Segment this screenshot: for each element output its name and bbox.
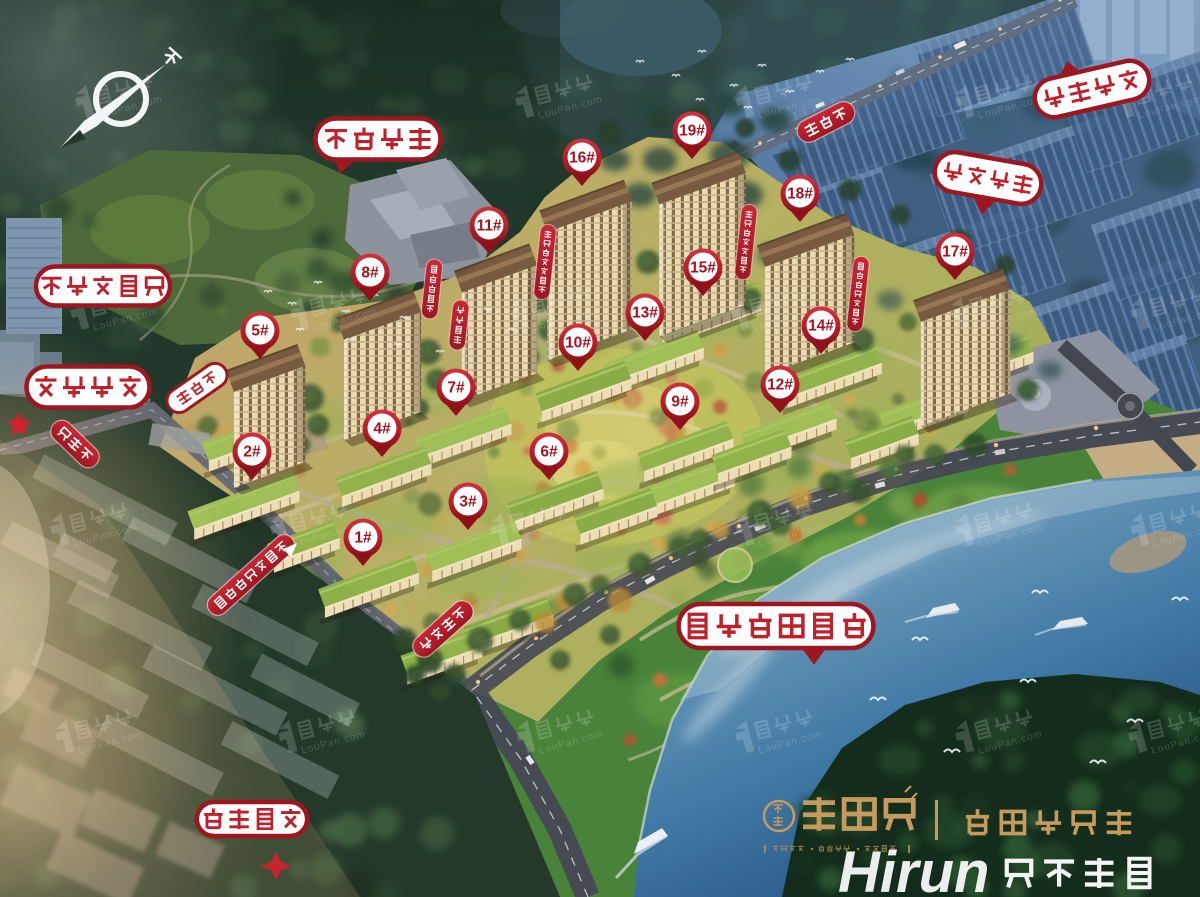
svg-text:11#: 11#	[476, 218, 501, 235]
svg-text:14#: 14#	[808, 318, 834, 335]
svg-text:9#: 9#	[671, 394, 689, 411]
svg-text:3#: 3#	[459, 494, 477, 511]
svg-text:5#: 5#	[251, 323, 269, 340]
svg-text:10#: 10#	[565, 335, 591, 352]
svg-text:1#: 1#	[354, 530, 372, 547]
svg-text:8#: 8#	[361, 265, 379, 282]
svg-text:15#: 15#	[690, 260, 716, 277]
svg-text:7#: 7#	[447, 380, 465, 397]
svg-text:2#: 2#	[243, 444, 261, 461]
svg-text:17#: 17#	[942, 244, 968, 261]
svg-text:Hirun: Hirun	[838, 840, 989, 897]
svg-text:4#: 4#	[373, 421, 391, 438]
svg-text:12#: 12#	[767, 377, 793, 394]
svg-text:18#: 18#	[787, 186, 813, 203]
svg-text:13#: 13#	[632, 305, 658, 322]
svg-text:6#: 6#	[540, 444, 558, 461]
svg-text:19#: 19#	[679, 123, 705, 140]
svg-text:16#: 16#	[569, 150, 595, 167]
